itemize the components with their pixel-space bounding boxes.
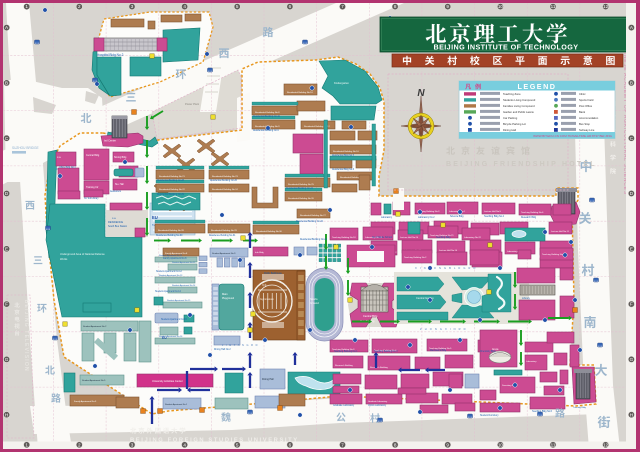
svg-text:Residential Bldg No.6: Residential Bldg No.6 (332, 168, 355, 171)
svg-text:N: N (417, 88, 425, 99)
svg-text:G: G (630, 357, 634, 362)
svg-text:6: 6 (289, 442, 292, 447)
svg-text:X I N G O N G B L D G R D: X I N G O N G B L D G R D (415, 266, 477, 270)
svg-text:Residential Building No.20: Residential Building No.20 (300, 238, 328, 241)
svg-text:Auditorium: Auditorium (110, 190, 121, 193)
svg-text:BEIJING FRIENDSHIP HOTEL: BEIJING FRIENDSHIP HOTEL (446, 161, 597, 168)
svg-text:Teaching Bldg No.4: Teaching Bldg No.4 (484, 216, 505, 218)
svg-text:Student Apartment No.13: Student Apartment No.13 (159, 274, 183, 277)
svg-text:Student Apartment No.15: Student Apartment No.15 (167, 299, 191, 302)
svg-text:Office Bldg No.1: Office Bldg No.1 (59, 167, 76, 169)
svg-text:Accommodation: Accommodation (579, 116, 599, 120)
svg-text:Stu. Hall: Stu. Hall (115, 183, 124, 186)
svg-text:Research Bldg: Research Bldg (521, 216, 537, 219)
svg-text:Power Plant: Power Plant (185, 102, 199, 106)
svg-text:Student Apartment No.14: Student Apartment No.14 (172, 284, 196, 287)
svg-text:Teaching Bldg: Teaching Bldg (436, 237, 451, 239)
svg-text:Students Living Compound: Students Living Compound (503, 98, 536, 102)
svg-text:Student Apartment No.9: Student Apartment No.9 (212, 252, 236, 255)
svg-text:Dining Hall: Dining Hall (262, 378, 274, 381)
svg-text:University Activities Center: University Activities Center (152, 379, 183, 383)
svg-text:RESIDENCE: RESIDENCE (108, 220, 123, 224)
svg-text:Central Bldg: Central Bldg (86, 154, 100, 157)
svg-text:10: 10 (498, 442, 504, 447)
svg-text:8: 8 (394, 442, 397, 447)
svg-text:Works: Works (60, 257, 68, 261)
svg-text:Teaching Building No.7: Teaching Building No.7 (542, 254, 565, 256)
svg-text:12: 12 (603, 4, 609, 9)
svg-text:Public Bathhouse: Public Bathhouse (264, 272, 283, 275)
svg-text:Laboratory No.2: Laboratory No.2 (418, 216, 435, 219)
svg-text:Residential Building No.10: Residential Building No.10 (253, 115, 281, 118)
svg-text:7: 7 (341, 4, 344, 9)
svg-text:Residential Building No.24: Residential Building No.24 (212, 188, 238, 191)
svg-text:Residential Building No.29: Residential Building No.29 (211, 229, 237, 232)
svg-text:Bicycle Parking Lot: Bicycle Parking Lot (503, 122, 526, 126)
svg-text:Kindergarten: Kindergarten (334, 81, 349, 85)
svg-text:Lecture Hall No.5: Lecture Hall No.5 (484, 210, 502, 213)
svg-text:Student Apartment No.5: Student Apartment No.5 (82, 379, 106, 382)
svg-text:10: 10 (498, 4, 504, 9)
svg-text:Family Apartment No.3: Family Apartment No.3 (74, 400, 97, 403)
svg-text:Residential Building No.23: Residential Building No.23 (212, 175, 238, 178)
svg-text:4: 4 (183, 442, 186, 447)
svg-text:Library: Library (522, 296, 531, 300)
svg-text:Info Bldg: Info Bldg (255, 252, 264, 254)
svg-text:Student Apartment No.12: Student Apartment No.12 (156, 270, 183, 273)
svg-text:Graduate Laboratory: Graduate Laboratory (368, 400, 388, 403)
svg-text:E: E (5, 246, 8, 251)
svg-text:Mechanics Bldg: Mechanics Bldg (430, 350, 447, 352)
svg-text:Chemistry Bldg: Chemistry Bldg (480, 350, 496, 353)
svg-text:2: 2 (78, 442, 81, 447)
svg-text:1: 1 (25, 442, 28, 447)
svg-text:Student Dormitory: Student Dormitory (480, 414, 499, 417)
svg-text:5#&: 5#& (57, 157, 61, 159)
svg-text:Residential Building No.28: Residential Building No.28 (158, 229, 184, 232)
svg-text:12: 12 (603, 442, 609, 447)
svg-text:Residential Building No.9: Residential Building No.9 (253, 129, 279, 132)
svg-text:1: 1 (25, 4, 28, 9)
svg-text:Science Bldg: Science Bldg (450, 216, 464, 218)
svg-text:Residential Bldg No.5: Residential Bldg No.5 (332, 154, 355, 157)
svg-text:Dining Hall No.2: Dining Hall No.2 (214, 349, 231, 351)
svg-text:Residential Building No.30: Residential Building No.30 (256, 230, 282, 233)
svg-text:11: 11 (551, 442, 556, 447)
svg-text:Post Office: Post Office (579, 104, 593, 108)
svg-text:Family Apartment No.8: Family Apartment No.8 (163, 257, 187, 260)
svg-text:LEGEND: LEGEND (518, 82, 557, 91)
svg-text:Z H O N G X I N R D: Z H O N G X I N R D (420, 327, 467, 331)
svg-text:Student Apartment No.14: Student Apartment No.14 (155, 290, 182, 293)
svg-text:BEIJING INSTITUTE OF TECHNO: BEIJING INSTITUTE OF TECHNOLOGY (434, 43, 579, 52)
svg-text:5: 5 (236, 442, 239, 447)
svg-text:Residential Building No.27: Residential Building No.27 (300, 214, 326, 217)
svg-text:Residential Building No.25: Residential Building No.25 (288, 183, 314, 186)
svg-text:Research Building: Research Building (370, 366, 389, 369)
svg-text:Residential Building No.24: Residential Building No.24 (286, 187, 314, 190)
svg-text:Siming Bldg: Siming Bldg (114, 157, 127, 159)
svg-text:Research Building: Research Building (335, 364, 354, 367)
svg-text:Residential Building No.22: Residential Building No.22 (296, 220, 324, 223)
svg-text:BEIJING TELEVISION: BEIJING TELEVISION (23, 300, 29, 372)
svg-text:Main: Main (222, 292, 228, 296)
svg-text:Intl Center: Intl Center (104, 139, 116, 143)
svg-text:Residence Building No.30: Residence Building No.30 (156, 235, 183, 237)
svg-text:5: 5 (236, 4, 239, 9)
svg-text:South Bus Station: South Bus Station (108, 225, 128, 228)
svg-text:Student Apartment No.11: Student Apartment No.11 (159, 254, 183, 257)
svg-text:Teaching Zone: Teaching Zone (503, 92, 521, 96)
svg-text:H: H (630, 412, 633, 417)
svg-text:Training Bldg: Training Bldg (573, 406, 587, 409)
svg-text:No.3 Middle School: No.3 Middle School (372, 237, 392, 239)
svg-text:Residential Building No.21: Residential Building No.21 (159, 175, 185, 178)
svg-text:Xu Teli Library: Xu Teli Library (84, 197, 99, 200)
svg-text:3: 3 (131, 4, 134, 9)
svg-text:6: 6 (289, 4, 292, 9)
svg-text:Gymnasium: Gymnasium (260, 297, 274, 301)
svg-text:Laboratory No.22: Laboratory No.22 (464, 236, 482, 239)
svg-text:Families Living Compound: Families Living Compound (503, 104, 535, 108)
svg-text:Sports: Sports (310, 297, 318, 301)
svg-text:F: F (630, 302, 633, 307)
svg-text:B: B (5, 81, 8, 86)
svg-text:Optics Laboratory: Optics Laboratory (368, 404, 387, 407)
svg-text:Ground: Ground (310, 301, 319, 305)
svg-text:Laboratory: Laboratory (381, 216, 393, 219)
svg-text:Teaching Building No.18: Teaching Building No.18 (332, 237, 356, 239)
svg-text:Sports Field: Sports Field (579, 98, 594, 102)
svg-text:Bus Stop: Bus Stop (579, 122, 590, 126)
svg-text:4: 4 (183, 4, 186, 9)
svg-text:Garden and Public Lawns: Garden and Public Lawns (503, 110, 534, 114)
svg-text:Bank: Bank (579, 110, 586, 114)
svg-text:SUZHOU BRIDGE: SUZHOU BRIDGE (12, 146, 39, 150)
svg-text:Teaching Building No.3: Teaching Building No.3 (374, 351, 398, 353)
svg-text:Car Parking: Car Parking (503, 116, 518, 120)
svg-text:Teaching Building No.2: Teaching Building No.2 (404, 257, 427, 259)
svg-text:8: 8 (394, 4, 397, 9)
svg-text:Laboratory: Laboratory (526, 360, 537, 363)
svg-text:WWW.BIT.EDU.CN COM.TRAVELTIM: WWW.BIT.EDU.CN COM.TRAVELTIME.HR:8737 BE… (533, 134, 613, 138)
svg-text:Lecture Hall No.20: Lecture Hall No.20 (400, 236, 419, 239)
svg-text:Residential Building No.26: Residential Building No.26 (288, 197, 314, 200)
svg-text:Student Apartment No.15: Student Apartment No.15 (161, 318, 188, 321)
svg-text:Graduate Laboratory: Graduate Laboratory (333, 404, 355, 407)
svg-text:3: 3 (131, 442, 134, 447)
svg-text:Residential Building No.16: Residential Building No.16 (333, 150, 359, 153)
svg-text:Student Apartment No.2: Student Apartment No.2 (83, 325, 107, 328)
svg-text:EU: EU (162, 336, 167, 340)
svg-text:B: B (630, 81, 633, 86)
svg-text:Central Bldg: Central Bldg (363, 314, 378, 318)
svg-text:Subway Line: Subway Line (579, 128, 595, 132)
svg-text:5#&: 5#& (112, 218, 116, 220)
svg-text:毕业: 毕业 (262, 283, 267, 287)
svg-text:Teaching Building No.6: Teaching Building No.6 (521, 212, 544, 214)
svg-text:Residential Building No.8: Residential Building No.8 (255, 111, 280, 114)
svg-text:Residential Building No.29: Residential Building No.29 (157, 193, 185, 196)
svg-text:E: E (630, 246, 633, 251)
svg-text:Laboratory No.4: Laboratory No.4 (449, 210, 465, 213)
svg-text:Playground: Playground (222, 297, 235, 300)
svg-text:F: F (5, 302, 8, 307)
svg-text:Training Ctr: Training Ctr (86, 186, 99, 189)
svg-text:Residential Building No.22: Residential Building No.22 (159, 188, 185, 191)
svg-text:7: 7 (341, 442, 344, 447)
svg-text:Student Apartment No.1: Student Apartment No.1 (165, 403, 188, 406)
svg-text:2: 2 (78, 4, 81, 9)
svg-text:Residential Building No.10: Residential Building No.10 (287, 91, 313, 94)
svg-text:Underground Area of National D: Underground Area of National Defense (60, 252, 105, 256)
svg-text:Student Apartment No.12: Student Apartment No.12 (172, 261, 196, 264)
svg-text:G: G (5, 357, 9, 362)
svg-text:J I E F A N G R D: J I E F A N G R D (222, 344, 258, 347)
svg-text:9: 9 (446, 442, 449, 447)
svg-text:Residence Building No.31: Residence Building No.31 (209, 235, 236, 237)
svg-text:Residential Building No.26: Residential Building No.26 (210, 179, 238, 182)
svg-text:Residential Building No.28: Residential Building No.28 (157, 179, 185, 182)
svg-text:Clinic: Clinic (579, 92, 586, 96)
svg-text:Lecture Hall No.11: Lecture Hall No.11 (551, 230, 570, 233)
svg-text:11: 11 (551, 4, 556, 9)
svg-text:9: 9 (446, 4, 449, 9)
svg-text:Hospital Bldg No.2: Hospital Bldg No.2 (97, 53, 124, 57)
svg-text:H: H (5, 412, 8, 417)
svg-text:Teaching Building No.1: Teaching Building No.1 (334, 351, 358, 353)
svg-text:EU: EU (152, 215, 158, 220)
svg-text:Dining Hall: Dining Hall (503, 128, 516, 132)
